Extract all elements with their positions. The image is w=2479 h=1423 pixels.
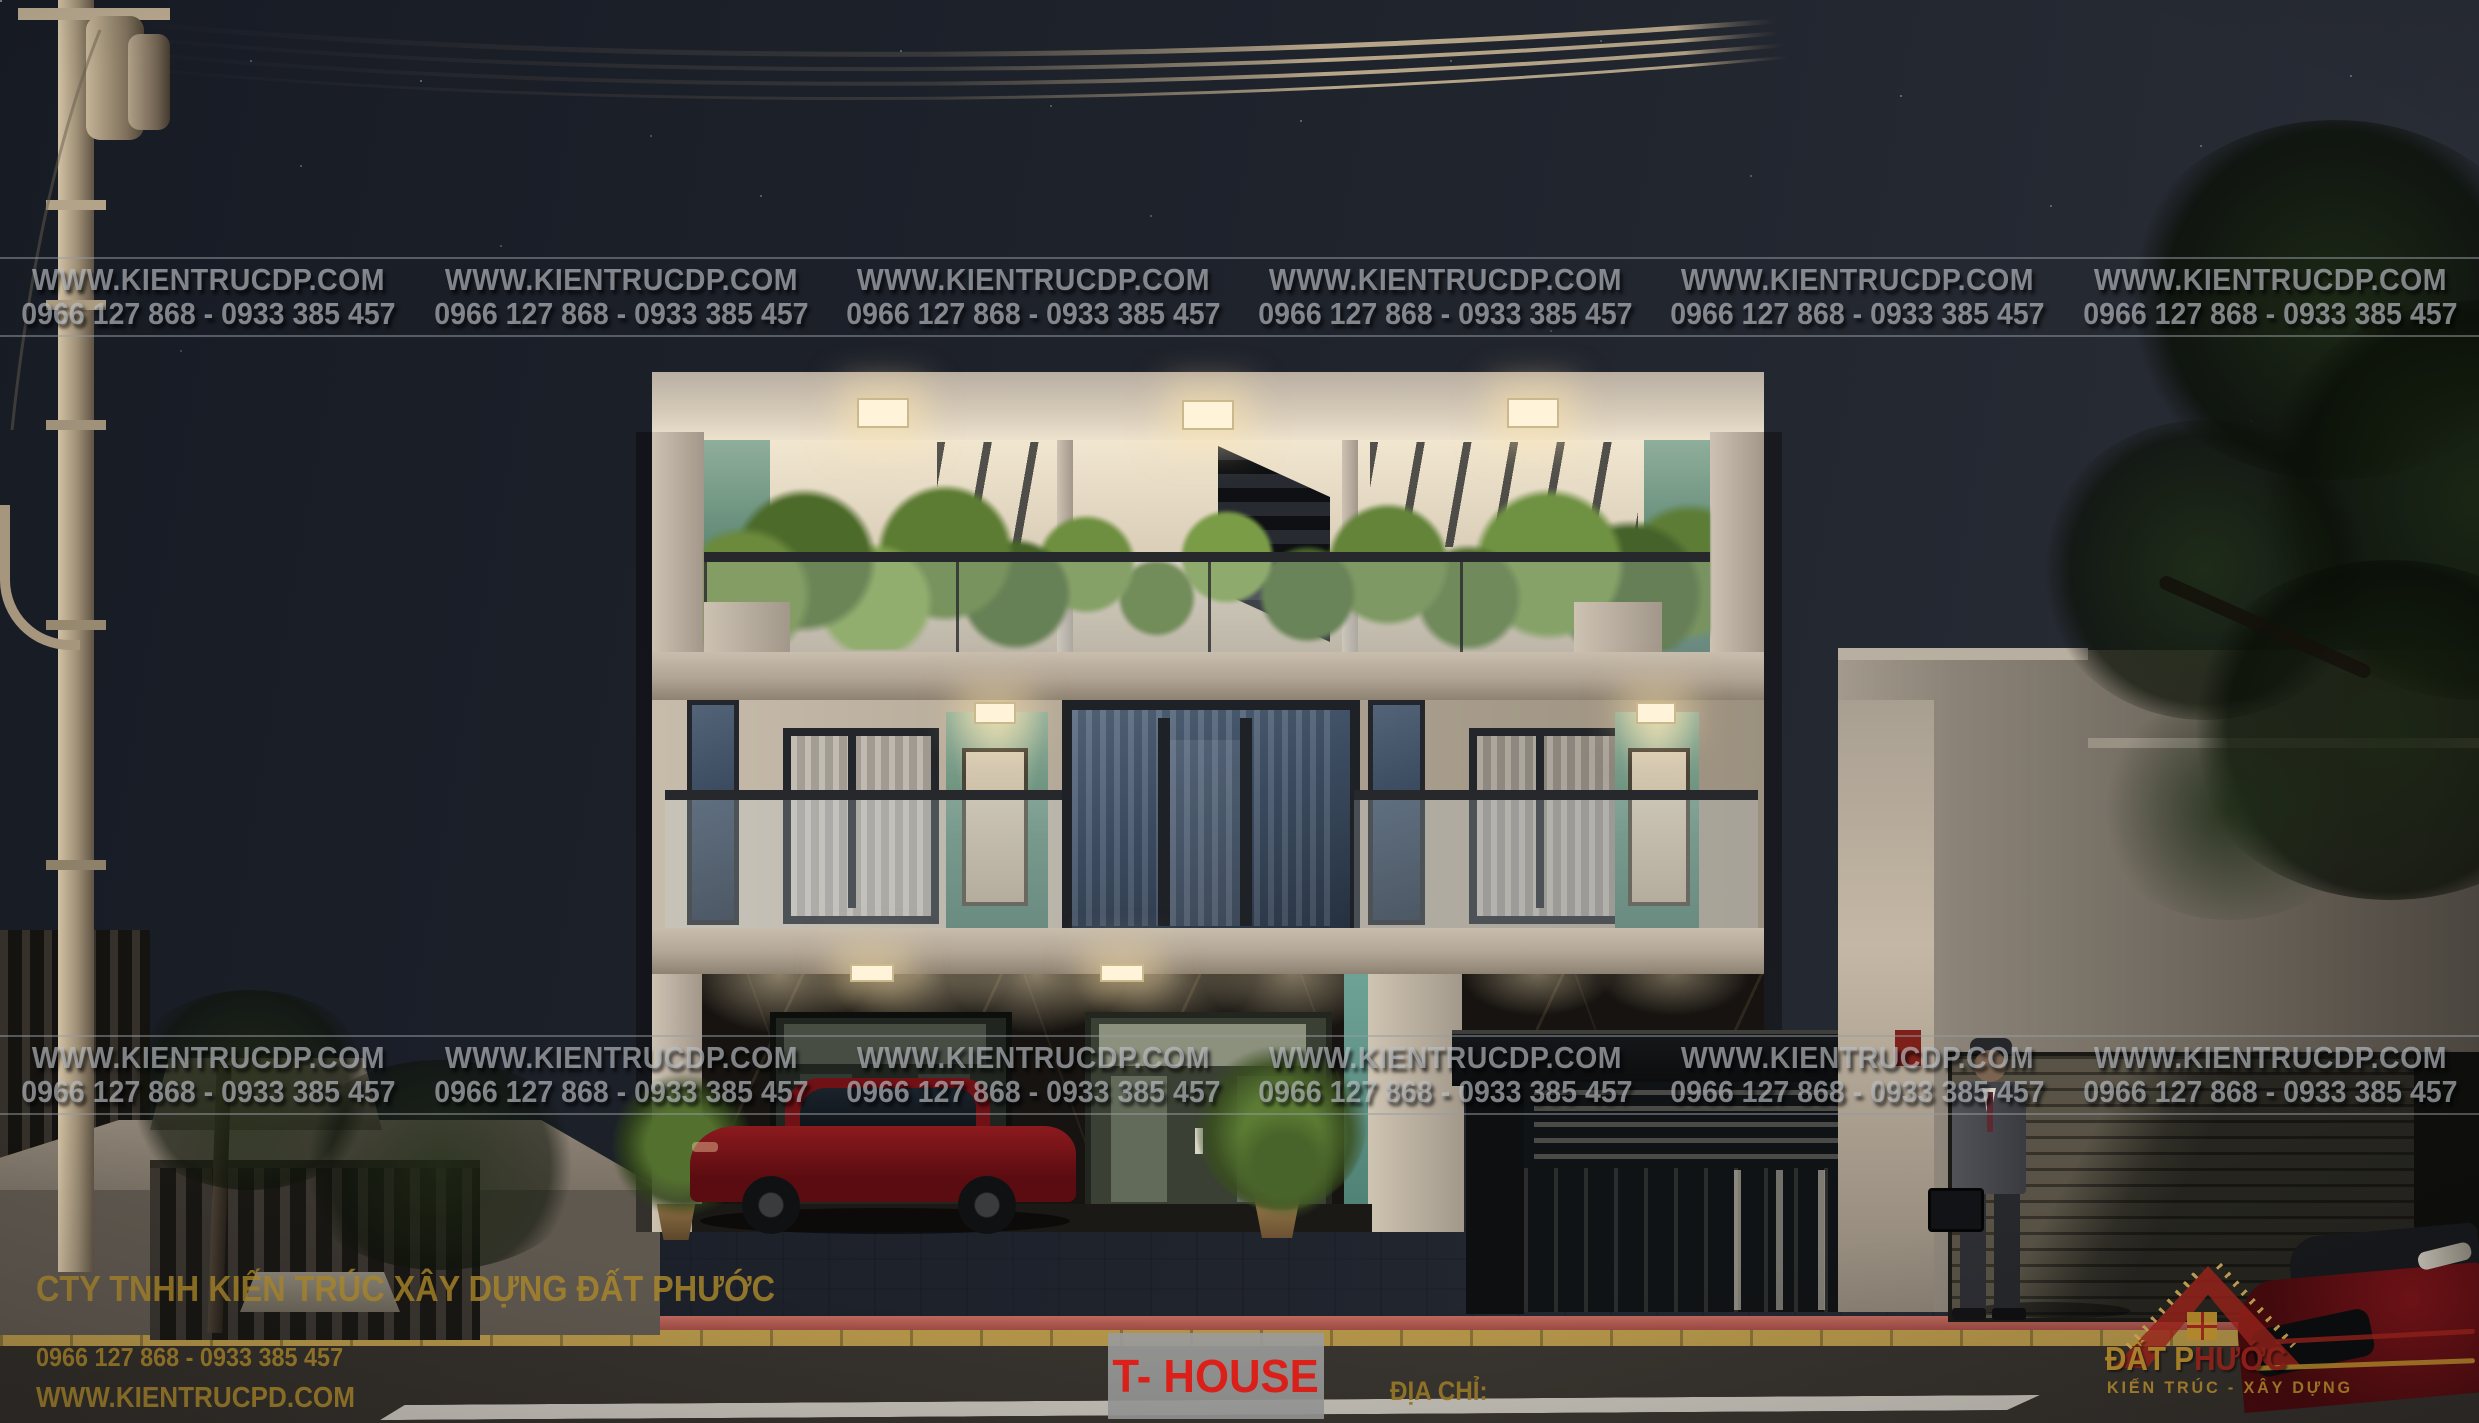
balcony-rail-left [665,790,1062,800]
gate-panel [1524,1082,1848,1312]
porch-ceiling-light [850,964,894,982]
gate-light-slit [1776,1170,1783,1310]
car-wheel [958,1176,1016,1234]
logo-window-icon [2187,1312,2217,1340]
balcony-glass-right [1354,800,1758,936]
logo-red-swoosh [2275,1329,2475,1344]
pole-conduit-arm [0,505,80,650]
floor2-ceiling-light [974,702,1016,724]
gate-bars [1524,1168,1848,1312]
company-name: CTY TNHH KIẾN TRÚC XÂY DỰNG ĐẤT PHƯỚC [36,1268,775,1310]
watermark-band-bottom: WWW.KIENTRUCDP.COM0966 127 868 - 0933 38… [0,1035,2479,1115]
watermark-block: WWW.KIENTRUCDP.COM0966 127 868 - 0933 38… [22,263,396,331]
footer-website: WWW.KIENTRUCPD.COM [36,1382,355,1415]
watermark-block: WWW.KIENTRUCDP.COM0966 127 868 - 0933 38… [2083,1041,2457,1109]
watermark-phone: 0966 127 868 - 0933 385 457 [846,1075,1220,1109]
terrace-column-right [1710,432,1764,658]
watermark-block: WWW.KIENTRUCDP.COM0966 127 868 - 0933 38… [22,1041,396,1109]
leg [1994,1194,2020,1310]
watermark-site: WWW.KIENTRUCDP.COM [1258,1041,1632,1075]
watermark-site: WWW.KIENTRUCDP.COM [846,1041,1220,1075]
pole-clamp [46,860,106,870]
car-wheel [742,1176,800,1234]
logo-brand-part3: HƯỚC [2194,1340,2287,1377]
terrace-rail [704,552,1710,562]
watermark-block: WWW.KIENTRUCDP.COM0966 127 868 - 0933 38… [846,1041,1220,1109]
glazing-mullion [1240,718,1252,926]
watermark-phone: 0966 127 868 - 0933 385 457 [1671,297,2045,331]
watermark-phone: 0966 127 868 - 0933 385 457 [1258,297,1632,331]
project-name-plate: T- HOUSE [1108,1333,1324,1419]
watermark-phone: 0966 127 868 - 0933 385 457 [2083,297,2457,331]
gate-light-slit [1818,1170,1825,1310]
glazing-door-pane [1170,740,1240,926]
watermark-site: WWW.KIENTRUCDP.COM [1258,263,1632,297]
architectural-night-render: WWW.KIENTRUCDP.COM0966 127 868 - 0933 38… [0,0,2479,1423]
car-headlight [692,1142,718,1152]
watermark-phone: 0966 127 868 - 0933 385 457 [434,297,808,331]
briefcase [1928,1188,1984,1232]
watermark-site: WWW.KIENTRUCDP.COM [2083,1041,2457,1075]
watermark-site: WWW.KIENTRUCDP.COM [434,263,808,297]
watermark-block: WWW.KIENTRUCDP.COM0966 127 868 - 0933 38… [434,1041,808,1109]
glazing-mullion [1158,718,1170,926]
terrace-column-left [652,432,704,658]
project-name-label: T- HOUSE [1113,1349,1319,1403]
shoe [1952,1308,1986,1320]
watermark-block: WWW.KIENTRUCDP.COM0966 127 868 - 0933 38… [1258,263,1632,331]
watermark-block: WWW.KIENTRUCDP.COM0966 127 868 - 0933 38… [2083,263,2457,331]
logo-brand-part2: P [2174,1340,2194,1377]
gate-light-slit [1734,1170,1741,1310]
terrace-planter [704,602,790,654]
watermark-site: WWW.KIENTRUCDP.COM [846,263,1220,297]
watermark-site: WWW.KIENTRUCDP.COM [22,263,396,297]
watermark-block: WWW.KIENTRUCDP.COM0966 127 868 - 0933 38… [846,263,1220,331]
watermark-block: WWW.KIENTRUCDP.COM0966 127 868 - 0933 38… [434,263,808,331]
footer-phone: 0966 127 868 - 0933 385 457 [36,1342,343,1373]
watermark-block: WWW.KIENTRUCDP.COM0966 127 868 - 0933 38… [1258,1041,1632,1109]
watermark-site: WWW.KIENTRUCDP.COM [2083,263,2457,297]
shoe [1992,1308,2026,1320]
watermark-phone: 0966 127 868 - 0933 385 457 [2083,1075,2457,1109]
balcony-glass-left [665,800,1062,936]
watermark-band-top: WWW.KIENTRUCDP.COM0966 127 868 - 0933 38… [0,257,2479,337]
watermark-phone: 0966 127 868 - 0933 385 457 [22,297,396,331]
watermark-phone: 0966 127 868 - 0933 385 457 [434,1075,808,1109]
terrace-glass-balustrade [704,562,1710,652]
watermark-phone: 0966 127 868 - 0933 385 457 [1671,1075,2045,1109]
right-neighbor-parapet [1838,648,2088,660]
floor2-center-glazing [1062,700,1360,956]
porch-ceiling-light [1100,964,1144,982]
watermark-phone: 0966 127 868 - 0933 385 457 [22,1075,396,1109]
watermark-block: WWW.KIENTRUCDP.COM0966 127 868 - 0933 38… [1671,1041,2045,1109]
balcony-rail-right [1354,790,1758,800]
watermark-block: WWW.KIENTRUCDP.COM0966 127 868 - 0933 38… [1671,263,2045,331]
watermark-site: WWW.KIENTRUCDP.COM [434,1041,808,1075]
floor-slab [652,928,1764,974]
floor2-ceiling-light [1636,702,1676,724]
company-logo: ĐẤT PHƯỚC KIẾN TRÚC - XÂY DỰNG [2105,1256,2479,1418]
right-neighbor-pillar [1838,700,1934,1312]
power-lines [0,0,2479,460]
watermark-site: WWW.KIENTRUCDP.COM [1671,1041,2045,1075]
gate-pillar [1466,1082,1524,1314]
tree-right-canopy [2090,700,2370,920]
watermark-phone: 0966 127 868 - 0933 385 457 [1258,1075,1632,1109]
logo-brand-text: ĐẤT PHƯỚC [2105,1340,2287,1378]
watermark-site: WWW.KIENTRUCDP.COM [22,1041,396,1075]
address-label: ĐỊA CHỈ: [1390,1376,1488,1407]
watermark-site: WWW.KIENTRUCDP.COM [1671,263,2045,297]
logo-tagline: KIẾN TRÚC - XÂY DỰNG [2107,1378,2353,1398]
floor-slab [652,652,1764,700]
logo-brand-part1: ĐẤT [2105,1340,2166,1377]
terrace-planter [1574,602,1662,654]
palm-foliage [1230,1110,1340,1220]
watermark-phone: 0966 127 868 - 0933 385 457 [846,297,1220,331]
